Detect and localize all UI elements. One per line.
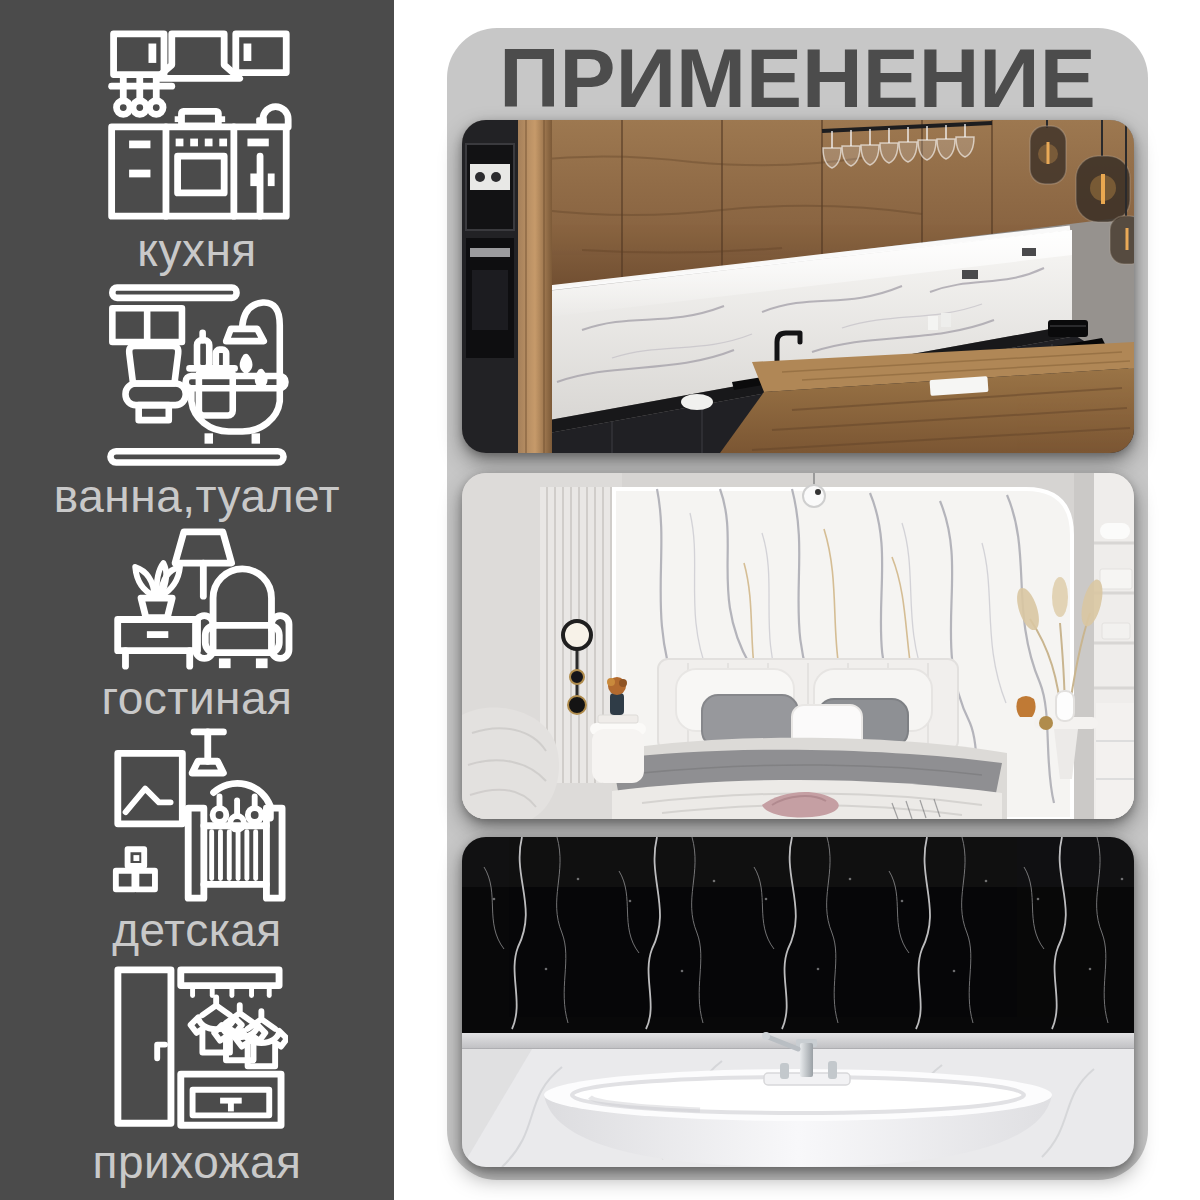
- bedroom-photo: [462, 473, 1134, 819]
- bathroom-photo-illustration: [462, 837, 1134, 1167]
- kitchen-photo: [462, 120, 1134, 453]
- sidebar-label-bathroom: ванна,туалет: [0, 470, 394, 522]
- sidebar-label-living-room: гостиная: [0, 672, 394, 724]
- page-title: ПРИМЕНЕНИЕ: [447, 30, 1148, 126]
- bedroom-photo-illustration: [462, 473, 1134, 819]
- kitchen-photo-illustration: [462, 120, 1134, 453]
- sidebar: кухня ванна,туалет: [0, 0, 394, 1200]
- sidebar-label-hallway: прихожая: [0, 1136, 394, 1188]
- application-panel: ПРИМЕНЕНИЕ: [447, 28, 1148, 1180]
- bathroom-photo: [462, 837, 1134, 1167]
- sidebar-label-nursery: детская: [0, 904, 394, 956]
- sidebar-label-kitchen: кухня: [0, 224, 394, 276]
- armchair-lamp-icon: [0, 528, 394, 674]
- wardrobe-hangers-icon: [0, 964, 394, 1136]
- kitchen-cabinets-icon: [0, 28, 394, 222]
- bathtub-toilet-icon: [0, 280, 394, 470]
- baby-crib-icon: [0, 728, 394, 904]
